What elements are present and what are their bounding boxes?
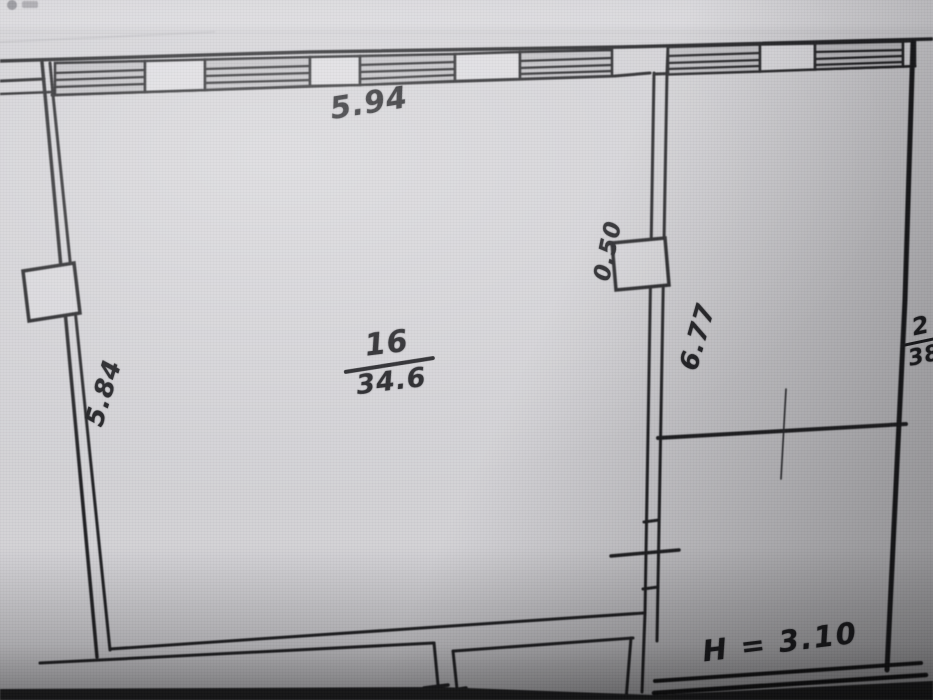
bottom-wall [40, 613, 644, 700]
room-label: 16 34.6 [333, 322, 445, 402]
adjacent-room-area: 38 [902, 342, 933, 373]
wall-pier [455, 52, 520, 81]
room-number: 16 [363, 326, 410, 363]
opening-jamb [434, 643, 438, 685]
wall-tick [644, 520, 659, 522]
cursor-artifact-icon [7, 0, 38, 10]
window-glazing [360, 54, 455, 85]
window-glazing [205, 57, 310, 90]
floorplan-photo: 5.94 16 34.6 5.84 0.50 6.77 2 38 H = 3.1… [0, 0, 933, 700]
window-glazing [520, 50, 612, 79]
wall-pier [145, 60, 205, 93]
wall-tick [643, 587, 658, 589]
window-glazing [815, 42, 903, 70]
wall-pier-block [23, 263, 80, 321]
partition-wall [611, 72, 679, 692]
paper-edge [0, 32, 215, 42]
wall-pier [760, 44, 815, 72]
window-glazing [55, 61, 145, 95]
window-glazing [668, 45, 760, 75]
top-window-band-right [655, 41, 915, 75]
floorplan-drawing [0, 0, 933, 700]
left-wall [23, 62, 110, 657]
interior-wall [658, 424, 906, 438]
center-cross-mark [781, 389, 786, 479]
wall-pier [310, 56, 360, 86]
